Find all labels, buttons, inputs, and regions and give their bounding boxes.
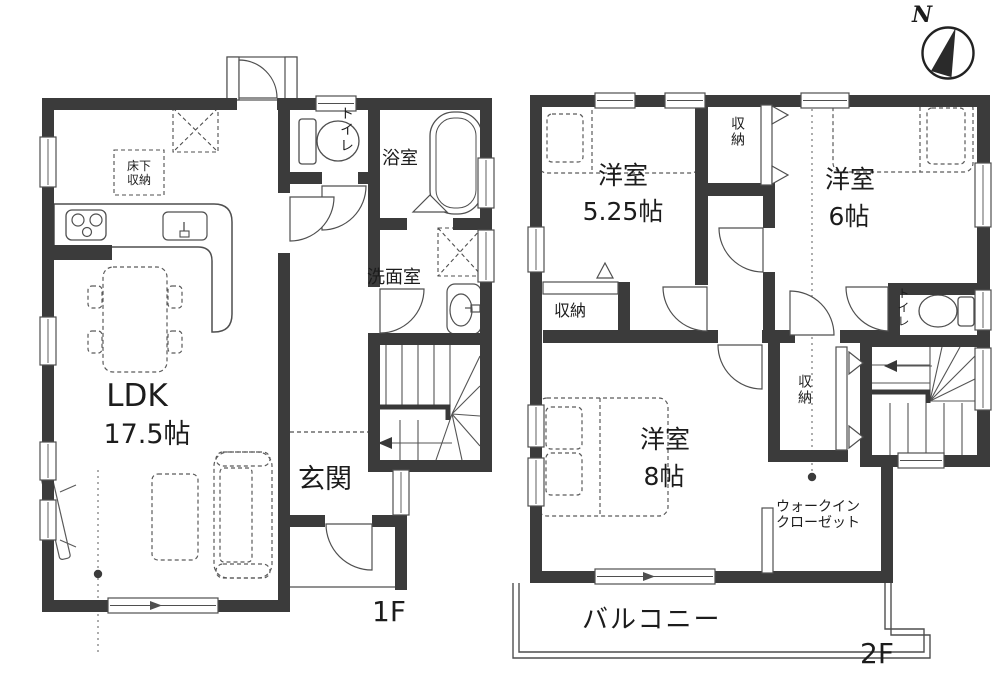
room-label-balcony: バルコニー [582, 599, 721, 636]
stairs-1f [378, 345, 480, 460]
washbasin-icon [447, 284, 481, 334]
refrigerator-space-icon [173, 108, 218, 152]
toilet-2f-icon [919, 295, 974, 327]
marker-dot-2f [808, 473, 816, 481]
ldk-door-swing [290, 197, 334, 241]
stairs-2f [872, 347, 977, 455]
room-label-bedroom-6: 洋室 [805, 160, 895, 196]
marker-dot-1f [94, 570, 102, 578]
floor-plan-page: N LDK 17.5帖 玄関 トイレ 浴室 洗面室 床下収納 1F 洋室 5.2… [0, 0, 1001, 685]
room-label-toilet-1f: トイレ [336, 106, 356, 154]
floor-label-1f: 1F [372, 595, 406, 628]
room-label-ldk: LDK [92, 378, 182, 414]
room-label-storage-top: 収納 [727, 116, 747, 148]
room-label-washroom: 洗面室 [367, 263, 421, 289]
bathtub-icon [430, 112, 482, 214]
washroom-door-swing [380, 289, 424, 333]
bedroom-8-door-swing [718, 345, 762, 389]
stairs-up-arrow-1f [378, 437, 392, 449]
room-label-storage-left: 収納 [554, 297, 586, 321]
stairs-down-arrow-2f [884, 360, 897, 372]
sofa [214, 452, 272, 578]
hall-door-swing [719, 228, 763, 272]
room-label-underfloor-storage: 床下収納 [114, 150, 164, 195]
room-size-bedroom-525: 5.25帖 [553, 192, 693, 228]
floor-plan-drawing [0, 0, 1001, 685]
room-size-bedroom-8: 8帖 [619, 457, 709, 493]
floor-label-2f: 2F [860, 637, 894, 670]
room-label-entrance: 玄関 [298, 457, 352, 496]
room-label-bedroom-8: 洋室 [620, 420, 710, 456]
room-label-storage-mid: 収納 [794, 374, 814, 406]
room-label-walkin-closet: ウォークインクローゼット [776, 500, 860, 531]
room-size-bedroom-6: 6帖 [804, 197, 894, 233]
dining-table-set [88, 267, 182, 372]
coffee-table [152, 474, 198, 560]
washing-machine-space-icon [438, 228, 482, 276]
compass-north-label: N [912, 2, 932, 28]
room-label-bedroom-525: 洋室 [578, 156, 668, 192]
walls-1f [42, 98, 492, 612]
room-label-bathroom: 浴室 [382, 144, 418, 170]
room-label-toilet-2f: トイレ [895, 287, 912, 329]
entrance-door-swing [326, 524, 372, 570]
kitchen-counter [54, 204, 232, 332]
toilet-2f-door-swing [846, 287, 888, 331]
bedroom-6-door-swing [790, 291, 834, 335]
room-size-ldk: 17.5帖 [77, 412, 217, 451]
compass-icon [923, 28, 974, 79]
bedroom-525-door-swing [663, 287, 707, 331]
